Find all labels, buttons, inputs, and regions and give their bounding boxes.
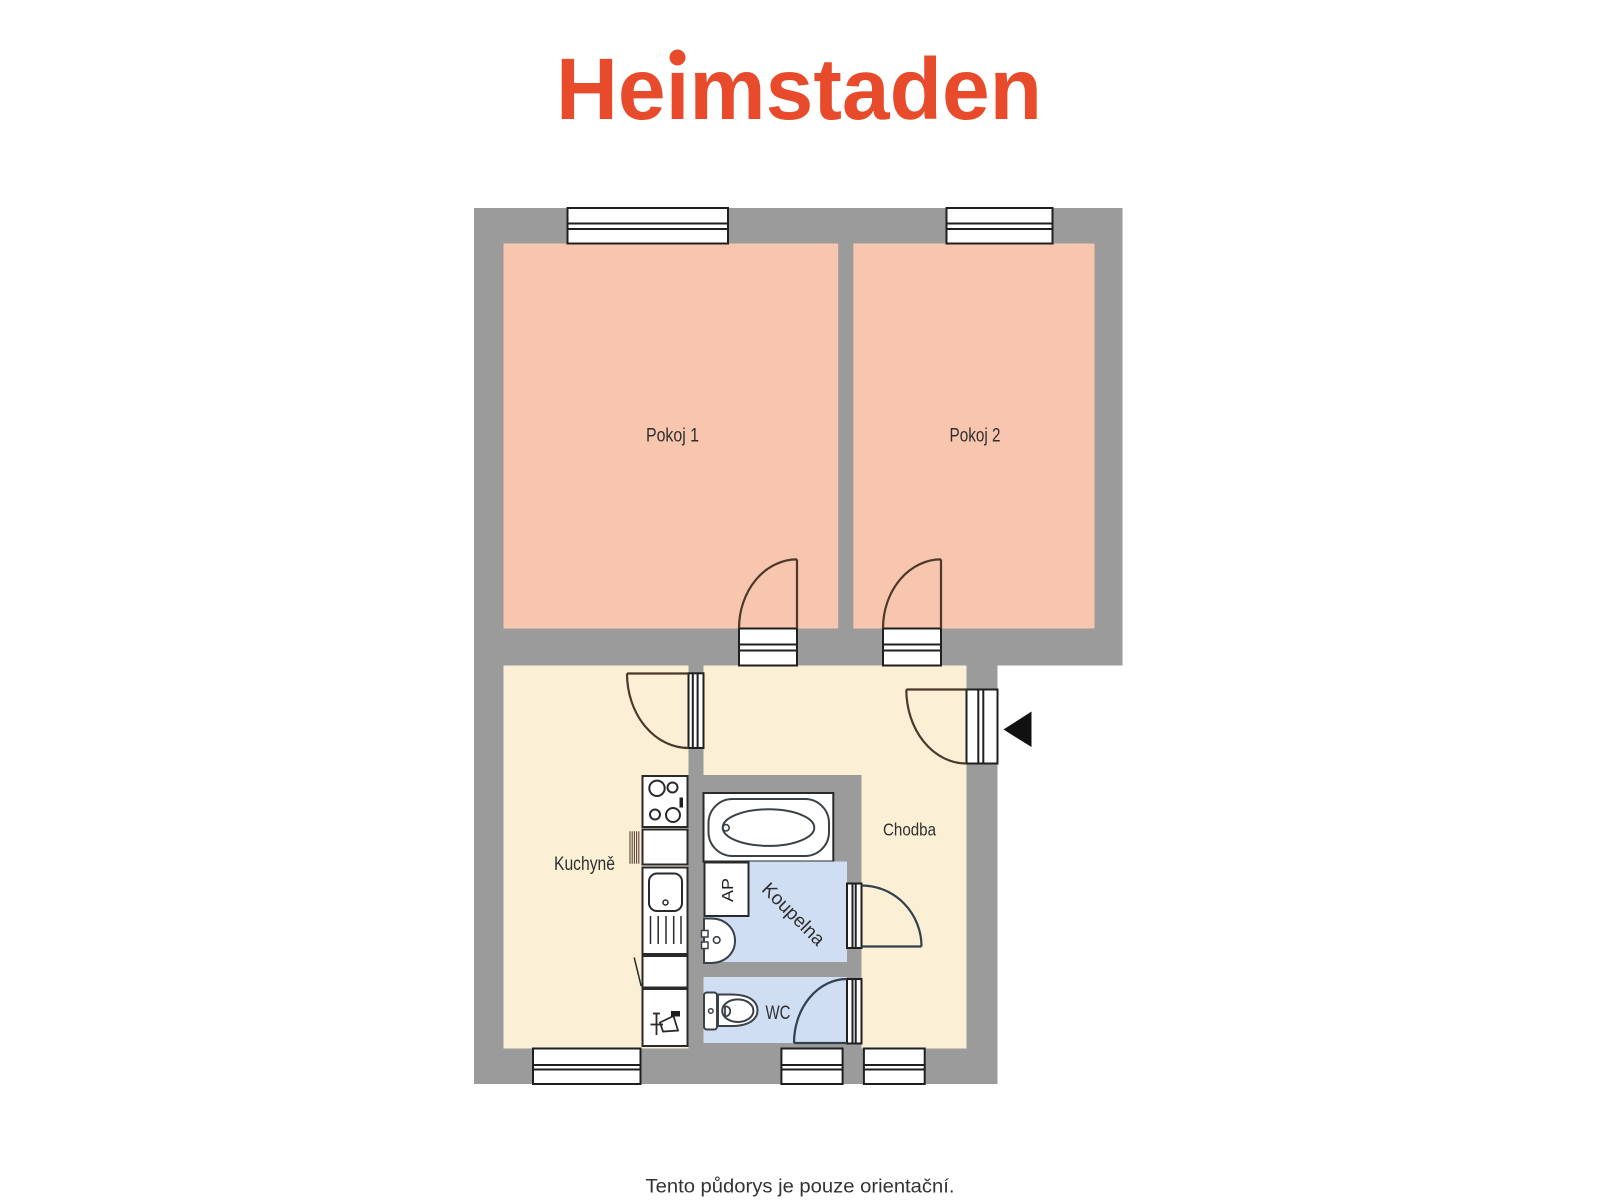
svg-text:Pokoj 1: Pokoj 1	[646, 425, 699, 447]
svg-text:Kuchyně: Kuchyně	[554, 853, 615, 875]
svg-text:Chodba: Chodba	[883, 820, 936, 840]
svg-text:Heımstaden: Heımstaden	[556, 41, 1042, 138]
svg-text:Pokoj 2: Pokoj 2	[950, 425, 1001, 447]
svg-text:AP: AP	[720, 878, 737, 902]
svg-text:WC: WC	[766, 1003, 791, 1024]
svg-text:Tento půdorys je pouze orienta: Tento půdorys je pouze orientační.	[646, 1177, 955, 1198]
